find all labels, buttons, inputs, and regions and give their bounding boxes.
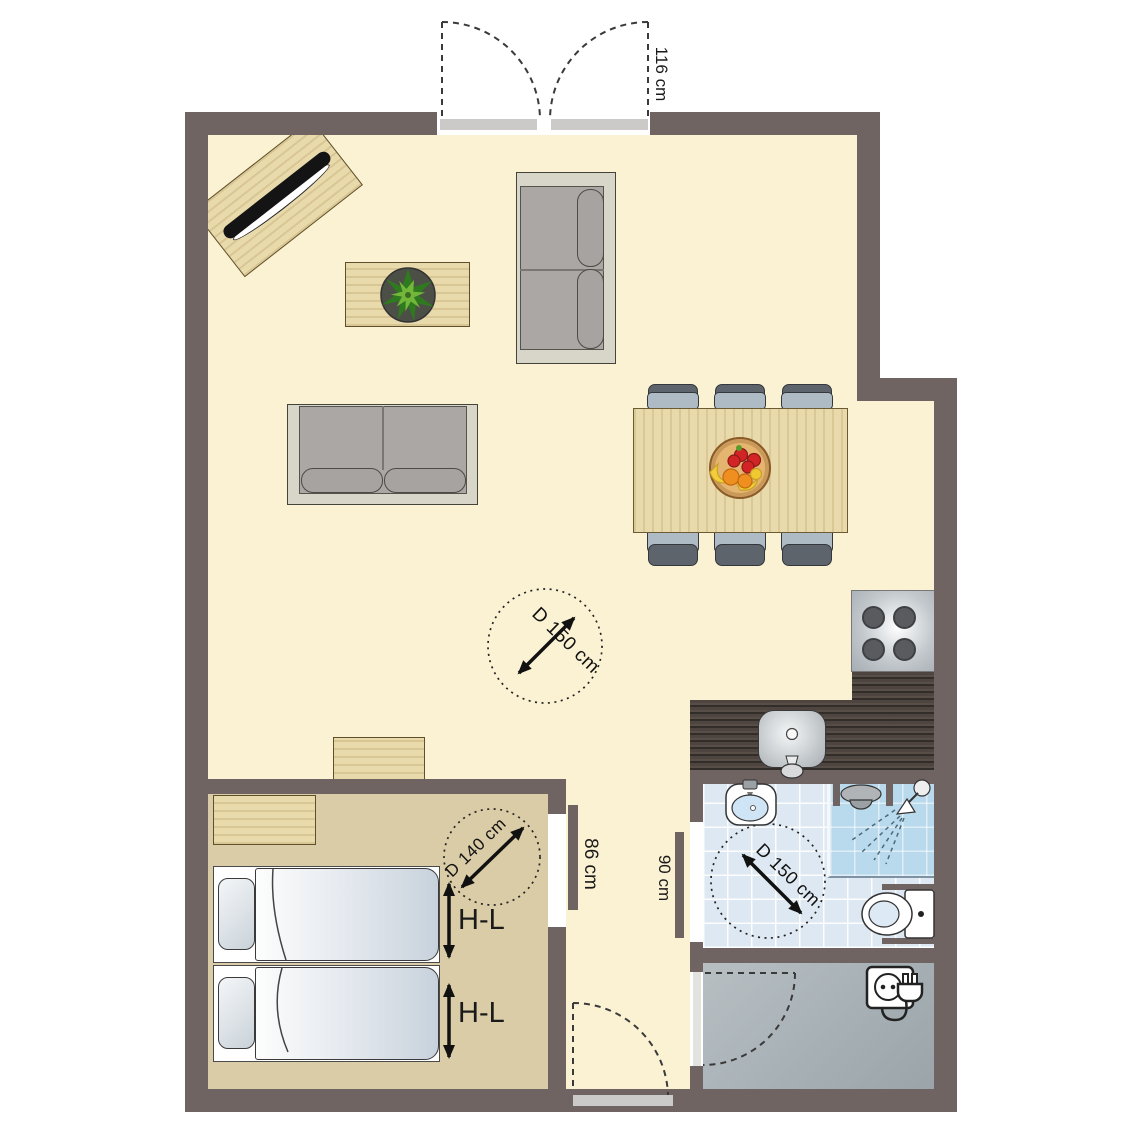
shower-wall-stub-left bbox=[833, 784, 840, 806]
wall-bedroom-door-stub bbox=[548, 794, 566, 814]
wall-bedroom-top bbox=[208, 779, 566, 794]
wall-top-left bbox=[185, 112, 437, 135]
wall-bottom bbox=[185, 1089, 957, 1112]
wall-storage-left-bottom bbox=[690, 1066, 703, 1089]
entry-door-leaf-right bbox=[551, 119, 648, 130]
bathroom-sliding-door bbox=[675, 832, 684, 938]
entry-width-label: 116 cm bbox=[651, 44, 671, 104]
sofa-cushion bbox=[301, 468, 383, 493]
floor-plan: D 150 cm D 140 cm D 150 cm bbox=[0, 0, 1145, 1145]
bathroom-door-width-label: 90 cm bbox=[654, 848, 674, 908]
burner-icon bbox=[862, 638, 885, 661]
wall-jog bbox=[857, 378, 957, 401]
bedroom-sliding-door bbox=[568, 805, 578, 910]
wall-top-right bbox=[650, 112, 880, 135]
wall-bathroom-left-top bbox=[690, 784, 703, 822]
stove-cooktop bbox=[851, 590, 936, 672]
burner-icon bbox=[893, 606, 916, 629]
shower-floor bbox=[827, 784, 934, 878]
bed-2-label: H-L bbox=[458, 997, 505, 1030]
bed-1-pillow bbox=[218, 878, 255, 950]
shower-wall-stub-right bbox=[886, 784, 893, 806]
wall-bathroom-top bbox=[690, 770, 934, 784]
wall-storage-left-top bbox=[690, 963, 703, 972]
toilet-partition-bottom bbox=[882, 938, 934, 944]
wall-left bbox=[185, 112, 208, 1112]
kitchen-sink bbox=[758, 710, 826, 768]
storage-door-leaf bbox=[693, 972, 701, 1066]
hallway-door-leaf bbox=[573, 1095, 673, 1106]
toilet-partition-top bbox=[882, 884, 934, 890]
sofa-cushion bbox=[577, 189, 604, 267]
wall-bedroom-right bbox=[548, 927, 566, 1089]
sofa-seat-divider bbox=[382, 406, 384, 470]
entry-door-leaf-left bbox=[440, 119, 537, 130]
dining-chair bbox=[715, 544, 765, 566]
dining-chair bbox=[782, 544, 832, 566]
coffee-table bbox=[345, 262, 470, 327]
bed-2-pillow bbox=[218, 977, 255, 1049]
kitchen-counter-corner bbox=[852, 670, 934, 700]
sideboard bbox=[333, 737, 425, 783]
sofa-cushion bbox=[577, 269, 604, 349]
bed-1-label: H-L bbox=[458, 904, 505, 937]
bed-2-duvet bbox=[255, 967, 439, 1060]
wall-right-lower bbox=[934, 401, 957, 1112]
burner-icon bbox=[862, 606, 885, 629]
dining-chair bbox=[648, 544, 698, 566]
bed-1-duvet bbox=[255, 868, 439, 961]
dining-table bbox=[633, 408, 848, 533]
sofa-cushion bbox=[384, 468, 466, 493]
storage-room-floor bbox=[703, 963, 934, 1089]
bedroom-door-width-label: 86 cm bbox=[581, 834, 601, 894]
burner-icon bbox=[893, 638, 916, 661]
wall-bathroom-bottom bbox=[690, 948, 934, 963]
entry-door-swing bbox=[442, 22, 648, 120]
wall-right-upper bbox=[857, 112, 880, 378]
sideboard bbox=[213, 795, 316, 845]
